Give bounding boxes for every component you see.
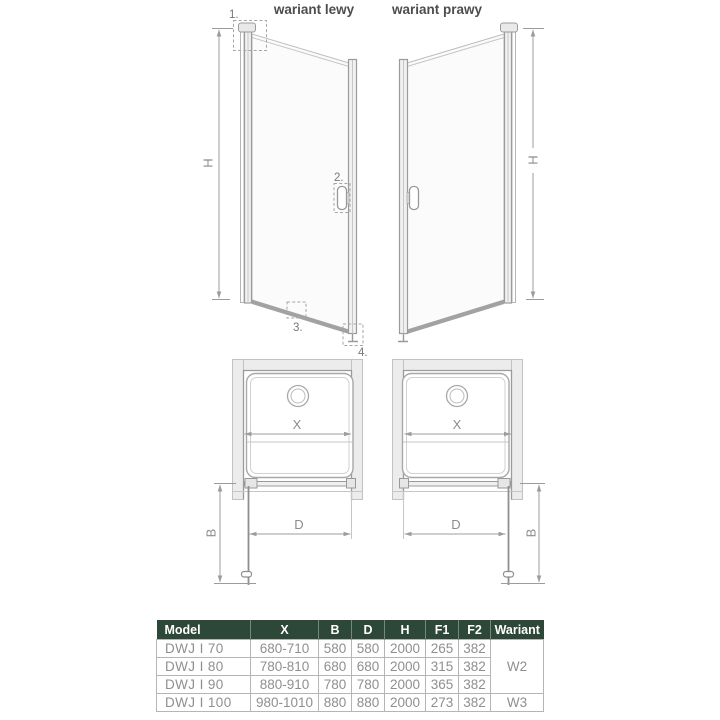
bottom-guide-icon bbox=[348, 334, 358, 342]
table-cell: 2000 bbox=[385, 658, 426, 676]
table-cell: 382 bbox=[459, 676, 491, 694]
door-handle-icon bbox=[242, 572, 252, 578]
column-header-wariant: Wariant bbox=[491, 620, 544, 640]
magnet-bracket-icon bbox=[400, 479, 409, 489]
table-cell-model: DWJ I 90 bbox=[157, 676, 251, 694]
wall bbox=[393, 360, 523, 371]
product-diagram-page: wariant lewy wariant prawy H 1. 2. bbox=[0, 0, 720, 720]
column-header-d: D bbox=[352, 620, 385, 640]
column-header-f1: F1 bbox=[426, 620, 459, 640]
table-row: DWJ I 100 980-1010 880 880 2000 273 382 … bbox=[157, 694, 544, 712]
table-cell: 382 bbox=[459, 658, 491, 676]
table-row: DWJ I 90 880-910 780 780 2000 365 382 bbox=[157, 676, 544, 694]
table-cell: 580 bbox=[352, 640, 385, 658]
door-sill bbox=[403, 482, 511, 487]
right-door-front-view: H bbox=[398, 23, 544, 342]
b-dimension-label-right: B bbox=[524, 529, 539, 538]
column-header-b: B bbox=[319, 620, 352, 640]
table-cell: 2000 bbox=[385, 640, 426, 658]
b-dimension-label-left: B bbox=[204, 529, 219, 538]
door-handle-icon bbox=[504, 572, 514, 578]
table-cell: 580 bbox=[319, 640, 352, 658]
wall bbox=[233, 360, 244, 500]
h-dimension-label-left: H bbox=[201, 158, 216, 167]
column-header-h: H bbox=[385, 620, 426, 640]
table-header-row: Model X B D H F1 F2 Wariant bbox=[157, 620, 544, 640]
table-cell: 680 bbox=[319, 658, 352, 676]
table-row: DWJ I 70 680-710 580 580 2000 265 382 W2 bbox=[157, 640, 544, 658]
wall bbox=[233, 360, 363, 371]
table-cell-model: DWJ I 100 bbox=[157, 694, 251, 712]
top-hinge-icon bbox=[239, 23, 256, 32]
callout-1-label: 1. bbox=[229, 9, 239, 21]
table-row: DWJ I 80 780-810 680 680 2000 315 382 bbox=[157, 658, 544, 676]
table-cell: 382 bbox=[459, 640, 491, 658]
glass-panel bbox=[407, 34, 504, 332]
magnet-bracket-icon bbox=[347, 479, 356, 489]
right-variant-title: wariant prawy bbox=[391, 2, 483, 17]
table-cell: 2000 bbox=[385, 676, 426, 694]
x-dimension-label-right: X bbox=[453, 417, 462, 432]
top-hinge-icon bbox=[501, 23, 518, 32]
spec-table: Model X B D H F1 F2 Wariant DWJ I 70 680… bbox=[156, 620, 544, 712]
callout-3-label: 3. bbox=[293, 322, 303, 334]
hinge-bracket-icon bbox=[245, 479, 257, 489]
right-top-view: X B D bbox=[393, 360, 546, 586]
table-cell-model: DWJ I 80 bbox=[157, 658, 251, 676]
table-cell: 265 bbox=[426, 640, 459, 658]
variant-cell-w3: W3 bbox=[491, 694, 544, 712]
bottom-guide-icon bbox=[398, 334, 408, 342]
diagram-canvas: wariant lewy wariant prawy H 1. 2. bbox=[0, 0, 720, 615]
table-cell-model: DWJ I 70 bbox=[157, 640, 251, 658]
table-cell: 780 bbox=[319, 676, 352, 694]
table-cell: 382 bbox=[459, 694, 491, 712]
x-dimension-label-left: X bbox=[293, 417, 302, 432]
wall bbox=[512, 360, 523, 500]
left-top-view: X B D bbox=[204, 360, 363, 586]
spec-table-container: Model X B D H F1 F2 Wariant DWJ I 70 680… bbox=[156, 620, 544, 712]
left-variant-title: wariant lewy bbox=[273, 2, 355, 17]
table-cell: 365 bbox=[426, 676, 459, 694]
door-sill bbox=[244, 482, 352, 487]
column-header-x: X bbox=[251, 620, 319, 640]
callout-2-label: 2. bbox=[334, 172, 344, 184]
table-cell: 680-710 bbox=[251, 640, 319, 658]
h-dimension-label-right: H bbox=[526, 155, 541, 164]
table-cell: 315 bbox=[426, 658, 459, 676]
callout-4-label: 4. bbox=[358, 347, 368, 359]
column-header-f2: F2 bbox=[459, 620, 491, 640]
table-cell: 980-1010 bbox=[251, 694, 319, 712]
table-cell: 780-810 bbox=[251, 658, 319, 676]
table-cell: 880 bbox=[352, 694, 385, 712]
left-door-front-view: H 1. 2. 3. 4. bbox=[201, 9, 368, 359]
variant-cell-w2: W2 bbox=[491, 640, 544, 694]
table-cell: 780 bbox=[352, 676, 385, 694]
d-dimension-label-left: D bbox=[294, 517, 303, 532]
table-cell: 2000 bbox=[385, 694, 426, 712]
table-cell: 680 bbox=[352, 658, 385, 676]
door-handle-icon bbox=[410, 187, 419, 210]
table-cell: 880 bbox=[319, 694, 352, 712]
column-header-model: Model bbox=[157, 620, 251, 640]
table-cell: 880-910 bbox=[251, 676, 319, 694]
door-handle-icon bbox=[338, 187, 347, 210]
table-cell: 273 bbox=[426, 694, 459, 712]
d-dimension-label-right: D bbox=[451, 517, 460, 532]
